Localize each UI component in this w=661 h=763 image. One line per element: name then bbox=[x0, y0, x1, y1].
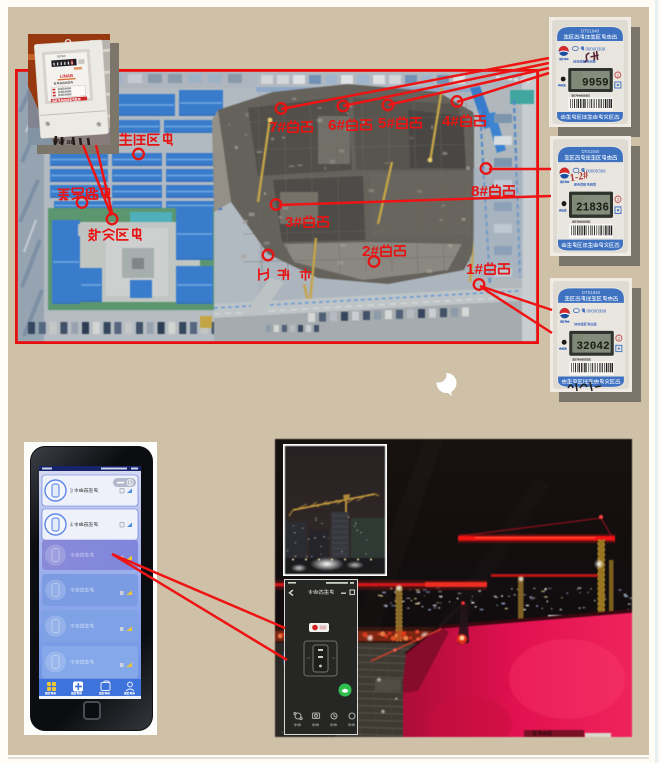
svg-text:7#: 7# bbox=[269, 119, 286, 136]
svg-text:4#: 4# bbox=[442, 113, 459, 130]
svg-text:8#: 8# bbox=[471, 183, 488, 200]
svg-text:3#: 3# bbox=[285, 214, 302, 231]
svg-text:1#: 1# bbox=[466, 261, 483, 278]
svg-text:2#: 2# bbox=[362, 243, 379, 260]
svg-text:5#: 5# bbox=[378, 115, 395, 132]
svg-text:6#: 6# bbox=[328, 117, 345, 134]
